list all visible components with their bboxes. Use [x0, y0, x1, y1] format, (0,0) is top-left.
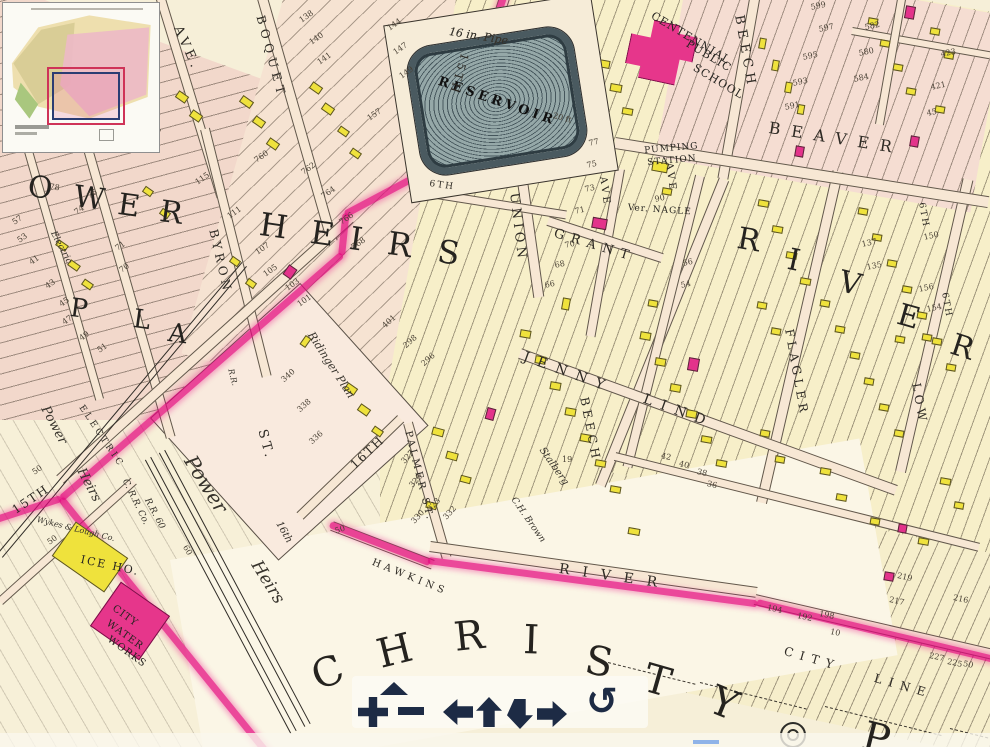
big-letter: A	[166, 320, 188, 348]
street-label: JENNY	[521, 350, 615, 396]
lot-number: 78	[49, 183, 60, 192]
lot-number: 36	[706, 480, 718, 490]
lot-number: 19	[562, 456, 572, 464]
lot-number: 584	[853, 73, 870, 84]
street-label: LIND	[641, 392, 716, 431]
lot-number: 138	[298, 9, 315, 24]
lot-number: 50	[962, 660, 974, 670]
street-label: ELECTRIC	[77, 404, 125, 470]
pan-right-button[interactable]	[537, 701, 567, 727]
street-label: LINE	[873, 672, 934, 700]
big-letter: R	[158, 197, 185, 230]
lot-number: 762	[300, 161, 317, 176]
lot-number: 580	[858, 47, 875, 58]
place-label: Ver. NAGLE	[627, 204, 692, 217]
lot-number: 45	[58, 296, 71, 308]
street-label: ST.	[255, 428, 276, 462]
lot-number: 582	[864, 21, 881, 32]
lot-number: 20 ft	[552, 112, 572, 125]
lot-number: 71	[574, 206, 586, 216]
map-navigation-controls: ↺	[352, 676, 648, 728]
script-label: Stalberg	[537, 446, 570, 487]
lot-number: 144	[386, 17, 403, 32]
street-label: BOQUET	[254, 14, 288, 100]
big-letter: I	[785, 245, 803, 277]
lot-number: 593	[792, 77, 809, 88]
lot-number: 70	[118, 262, 131, 274]
inset-caption-line	[15, 132, 37, 135]
lot-number: 42	[660, 452, 672, 462]
street-label: HAWKINS	[370, 558, 449, 598]
lot-number: 764	[320, 185, 337, 200]
lot-number: 296	[420, 352, 437, 368]
street-label: AVE	[663, 162, 677, 193]
pipe-label: 16 in. Pipe	[448, 26, 509, 46]
inset-view-rectangle[interactable]	[52, 72, 120, 120]
big-letter: P	[858, 716, 894, 747]
lot-number: 150	[923, 231, 940, 242]
big-letter: R	[386, 227, 414, 262]
script-label: Electric	[48, 230, 73, 266]
big-letter: E	[309, 216, 337, 251]
zoom-in-triangle-icon	[380, 682, 408, 695]
lot-number: 57	[11, 214, 24, 226]
map-canvas[interactable]: RESERVOIR OWERHEIRSPLARIVERCHRISTYPAVE.B…	[0, 0, 990, 747]
big-letter: L	[131, 306, 152, 334]
lot-number: 760	[253, 149, 270, 164]
lot-number: 101	[296, 293, 313, 308]
lot-number: 43	[44, 278, 57, 290]
script-label: R.R.	[226, 368, 238, 387]
street-label: 6TH	[429, 180, 456, 192]
street-label: AVE	[597, 176, 611, 207]
lot-number: 50	[31, 464, 44, 476]
lot-number: 298	[402, 334, 419, 350]
street-label: 6TH	[916, 202, 929, 229]
inset-legend-box	[99, 129, 114, 141]
lot-number: 10	[829, 628, 841, 638]
place-label: ICE HO.	[80, 554, 141, 577]
inset-caption-line	[15, 125, 49, 129]
lot-number: 53	[16, 232, 29, 244]
lot-number: 192	[796, 612, 813, 623]
script-label: Heirs	[75, 466, 103, 504]
lot-number: 45	[926, 108, 938, 118]
lot-number: 71	[114, 240, 127, 252]
lot-number: 599	[810, 1, 827, 12]
big-letter: E	[116, 190, 142, 223]
lot-number: 219	[896, 572, 913, 583]
big-letter: R	[735, 224, 762, 257]
script-label: Power	[181, 452, 231, 516]
lot-number: 225	[946, 658, 963, 669]
big-letter: S	[436, 235, 462, 270]
big-letter: Y	[704, 680, 743, 727]
lot-number: 338	[296, 398, 313, 414]
lot-number: 336	[308, 430, 325, 446]
street-label: BEAVER	[767, 120, 903, 157]
lot-number: 77	[588, 138, 600, 148]
lot-number: 140	[308, 31, 325, 46]
lot-number: 340	[280, 368, 297, 384]
lot-number: 591	[784, 101, 801, 112]
lot-number: 595	[802, 51, 819, 62]
street-label: BYRON	[207, 228, 234, 295]
lot-number: 194	[766, 604, 783, 615]
lot-number: 597	[818, 23, 835, 34]
lot-number: 157	[366, 107, 383, 122]
big-letter: R	[947, 330, 978, 366]
lot-number: 111	[226, 205, 243, 220]
pan-down-button[interactable]	[507, 699, 533, 729]
script-label: C.H. Brown	[509, 496, 547, 544]
zoom-in-button[interactable]	[358, 697, 388, 727]
street-label: BEECH	[578, 396, 602, 463]
lot-number: 41	[28, 254, 41, 266]
big-letter: R	[452, 615, 486, 658]
lot-number: 107	[254, 241, 271, 256]
lot-number: 401	[381, 314, 398, 330]
inset-title-line	[31, 8, 143, 10]
reset-view-button[interactable]: ↺	[580, 678, 624, 724]
pan-up-button[interactable]	[476, 697, 502, 727]
pan-left-button[interactable]	[443, 699, 473, 725]
lot-number: 147	[392, 41, 409, 56]
big-letter: H	[258, 208, 290, 244]
street-label: UNION	[507, 192, 528, 263]
script-label: Heirs	[248, 558, 287, 607]
lot-number: 50	[46, 534, 59, 546]
lot-number: 156	[918, 283, 935, 294]
lot-number: 51	[96, 342, 109, 354]
lot-number: 137	[861, 238, 878, 249]
lot-number: 38	[696, 468, 708, 478]
lot-number: 49	[78, 330, 91, 342]
street-label: BEECH	[732, 14, 758, 90]
street-label: 15TH	[10, 483, 51, 516]
big-letter: I	[523, 620, 540, 661]
lot-number: 141	[316, 51, 333, 66]
street-label: LOW	[910, 382, 929, 426]
lot-number: 73	[584, 184, 596, 194]
lot-number: 75	[586, 160, 598, 170]
lot-number: 227	[928, 652, 945, 663]
big-letter: V	[836, 267, 864, 301]
script-label: 16th	[273, 520, 293, 545]
lot-number: 66	[544, 280, 556, 290]
lot-number: 105	[262, 263, 279, 278]
lot-number: 332	[442, 505, 458, 522]
street-label: 15TH	[448, 52, 470, 96]
lot-number: 40	[678, 460, 690, 470]
script-label: Ridinger Plan	[306, 330, 357, 400]
lot-number: 421	[930, 81, 947, 92]
big-letter: E	[894, 300, 923, 335]
street-label: CITY	[783, 645, 842, 672]
street-label: AVE.	[171, 24, 202, 73]
lot-number: 135	[866, 261, 883, 272]
lot-number: 60	[181, 544, 193, 557]
lot-number: 154	[926, 303, 943, 314]
lot-number: 50	[334, 525, 346, 536]
lot-number: 149	[398, 65, 415, 80]
lot-number: 54	[680, 280, 692, 290]
lot-number: 423	[940, 48, 957, 59]
overview-inset[interactable]	[2, 2, 160, 153]
script-label: Power	[39, 404, 70, 446]
lot-number: 68	[554, 260, 566, 270]
lot-number: 103	[284, 277, 301, 292]
zoom-out-button[interactable]	[398, 707, 424, 715]
lot-number: 70	[564, 240, 576, 250]
lot-number: 115	[194, 171, 211, 186]
lot-number: 56	[682, 258, 694, 268]
big-letter: C	[306, 649, 349, 698]
street-label: 16TH	[348, 434, 387, 471]
lot-number: 217	[888, 596, 905, 607]
street-label: FLAGLER	[783, 328, 810, 417]
lot-number: 198	[818, 610, 835, 621]
street-label: RIVER	[558, 562, 671, 591]
lot-number: 90	[654, 194, 666, 204]
lot-number: 216	[952, 594, 969, 605]
big-letter: H	[373, 628, 417, 675]
